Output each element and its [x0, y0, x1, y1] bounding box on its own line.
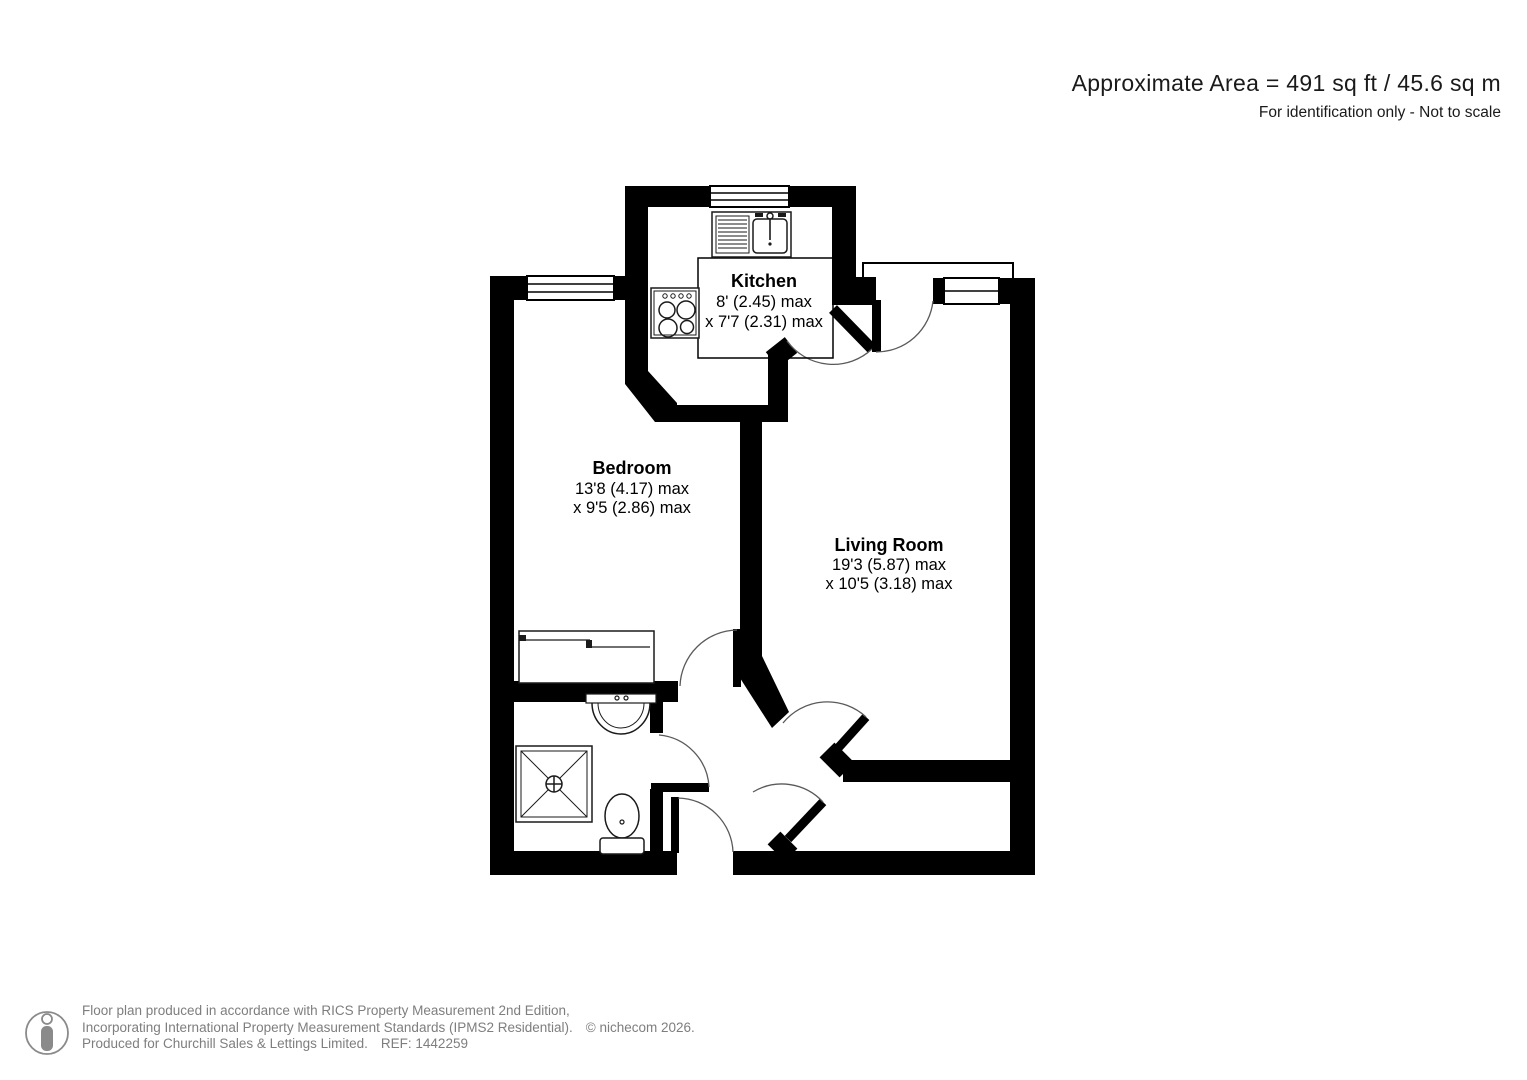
toilet [600, 794, 644, 854]
footer: Floor plan produced in accordance with R… [24, 1003, 695, 1059]
living-room-dim-2: x 10'5 (3.18) max [826, 575, 954, 593]
bedroom-door [680, 629, 741, 687]
kitchen-sink [712, 212, 791, 257]
living-room-dim-1: 19'3 (5.87) max [832, 556, 947, 574]
bedroom-dim-2: x 9'5 (2.86) max [573, 499, 692, 517]
kitchen-window [710, 186, 789, 207]
wardrobe [519, 631, 654, 683]
person-icon [24, 1003, 70, 1059]
living-room-window [944, 278, 999, 304]
entrance-door [671, 797, 733, 853]
bathroom-basin [586, 694, 656, 734]
hall-living-room-door [783, 702, 866, 757]
kitchen-dim-2: x 7'7 (2.31) max [705, 313, 824, 331]
copyright-text: © nichecom 2026. [586, 1020, 695, 1035]
footer-line-1: Floor plan produced in accordance with R… [82, 1003, 695, 1020]
footer-text: Floor plan produced in accordance with R… [82, 1003, 695, 1053]
floorplan-page: Approximate Area = 491 sq ft / 45.6 sq m… [0, 0, 1527, 1080]
bathroom-door [651, 735, 709, 792]
footer-line-2: Incorporating International Property Mea… [82, 1020, 695, 1037]
reference-number: REF: 1442259 [381, 1036, 468, 1051]
hall-cupboard-door [753, 784, 823, 839]
floor-plan: Kitchen 8' (2.45) max x 7'7 (2.31) max B… [0, 0, 1527, 1080]
hob [651, 288, 699, 338]
bedroom-dim-1: 13'8 (4.17) max [575, 480, 690, 498]
kitchen-name: Kitchen [731, 271, 797, 291]
living-room-name: Living Room [835, 535, 944, 555]
bedroom-label: Bedroom 13'8 (4.17) max x 9'5 (2.86) max [573, 458, 692, 517]
shower [516, 746, 592, 822]
footer-line-3: Produced for Churchill Sales & Lettings … [82, 1036, 695, 1053]
living-room-label: Living Room 19'3 (5.87) max x 10'5 (3.18… [826, 535, 954, 593]
kitchen-dim-1: 8' (2.45) max [716, 293, 813, 311]
bedroom-name: Bedroom [592, 458, 671, 478]
kitchen-label: Kitchen 8' (2.45) max x 7'7 (2.31) max [705, 271, 824, 331]
bedroom-window [527, 276, 614, 300]
living-room-patio-door [872, 300, 933, 352]
